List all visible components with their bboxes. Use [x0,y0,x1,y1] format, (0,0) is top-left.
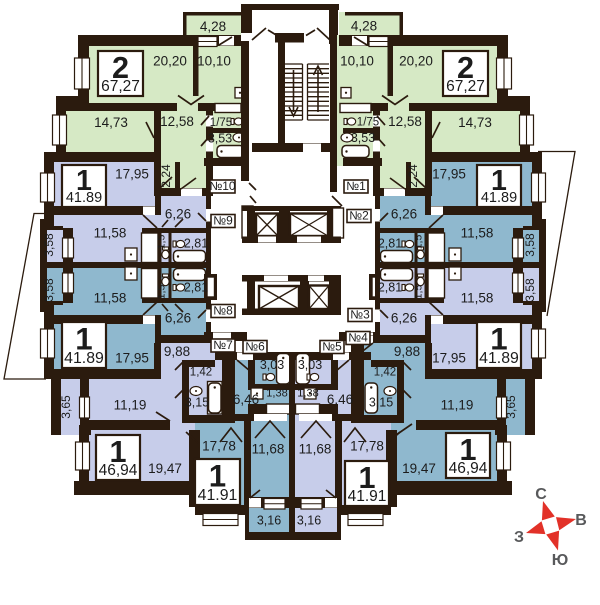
svg-text:№2: №2 [349,209,369,223]
svg-text:10,10: 10,10 [340,54,374,69]
svg-text:1/75: 1/75 [357,117,379,129]
svg-text:19,47: 19,47 [148,461,182,476]
svg-text:12,58: 12,58 [160,114,194,129]
svg-text:№4: №4 [348,331,368,345]
svg-text:41.89: 41.89 [479,350,519,367]
svg-text:6,26: 6,26 [391,311,417,326]
svg-text:2,81: 2,81 [184,237,208,251]
svg-text:41.91: 41.91 [198,487,238,504]
svg-text:1,38: 1,38 [266,388,287,400]
svg-text:14,73: 14,73 [94,115,128,130]
svg-text:3,15: 3,15 [369,396,393,410]
svg-text:№8: №8 [213,304,233,318]
svg-text:6,46: 6,46 [327,392,353,407]
svg-text:№3: №3 [350,308,370,322]
svg-text:67,27: 67,27 [101,78,140,95]
svg-text:11,58: 11,58 [461,291,494,306]
svg-text:46,94: 46,94 [449,460,488,477]
svg-text:3,53: 3,53 [351,131,375,145]
svg-text:14,73: 14,73 [458,115,492,130]
svg-text:2,81: 2,81 [378,237,402,251]
svg-text:17,95: 17,95 [432,351,466,366]
svg-text:1,5: 1,5 [413,285,425,300]
svg-text:2,24: 2,24 [406,164,420,188]
svg-text:4,28: 4,28 [351,19,377,34]
svg-text:11,68: 11,68 [252,442,285,457]
svg-text:11,19: 11,19 [114,398,147,413]
svg-text:1,42: 1,42 [374,367,396,379]
svg-text:6,26: 6,26 [165,311,191,326]
svg-text:2,24: 2,24 [159,164,173,188]
svg-text:12,58: 12,58 [388,114,422,129]
svg-text:Ю: Ю [552,552,569,569]
svg-text:11,58: 11,58 [94,226,127,241]
svg-text:20,20: 20,20 [399,54,433,69]
svg-text:№9: №9 [213,214,233,228]
svg-text:4,28: 4,28 [200,19,226,34]
svg-text:1,5: 1,5 [156,235,168,250]
svg-text:41.91: 41.91 [348,488,387,505]
svg-text:41.89: 41.89 [481,190,517,206]
svg-text:3,15: 3,15 [185,396,209,410]
svg-text:3,58: 3,58 [42,278,56,302]
svg-text:№10: №10 [209,179,235,193]
svg-text:№7: №7 [213,338,233,352]
svg-text:67,27: 67,27 [446,78,485,95]
svg-text:17,95: 17,95 [115,351,149,366]
svg-text:3,58: 3,58 [523,278,537,302]
svg-text:1,42: 1,42 [190,367,212,379]
svg-text:17,78: 17,78 [350,439,384,454]
svg-text:11,58: 11,58 [461,226,494,241]
svg-text:1,38: 1,38 [297,388,318,400]
svg-text:17,78: 17,78 [202,439,236,454]
svg-text:9,88: 9,88 [164,344,190,359]
svg-text:3,65: 3,65 [504,395,518,419]
svg-text:19,47: 19,47 [402,461,436,476]
svg-text:3,03: 3,03 [298,358,322,372]
svg-text:10,10: 10,10 [197,54,231,69]
svg-text:3,16: 3,16 [297,514,321,528]
svg-text:17,95: 17,95 [432,167,466,182]
svg-text:№6: №6 [245,340,265,354]
svg-text:3,16: 3,16 [257,514,281,528]
svg-text:20,20: 20,20 [153,54,187,69]
svg-text:3,58: 3,58 [42,233,56,257]
svg-text:№1: №1 [346,179,366,193]
svg-text:11,68: 11,68 [299,442,332,457]
svg-text:6,26: 6,26 [165,207,191,222]
svg-text:1/75: 1/75 [210,117,232,129]
svg-text:З: З [514,529,524,546]
svg-text:17,95: 17,95 [115,167,149,182]
svg-text:1,5: 1,5 [413,235,425,250]
svg-text:3,65: 3,65 [59,395,73,419]
svg-text:41.89: 41.89 [66,190,102,206]
svg-text:2,81: 2,81 [378,281,402,295]
svg-text:46,94: 46,94 [99,462,138,479]
svg-text:11,19: 11,19 [441,398,474,413]
svg-text:3,03: 3,03 [260,358,284,372]
svg-text:41.89: 41.89 [64,350,104,367]
svg-text:В: В [575,512,587,529]
svg-text:3,58: 3,58 [523,233,537,257]
svg-text:2,81: 2,81 [184,281,208,295]
svg-text:№5: №5 [322,340,342,354]
svg-text:С: С [535,486,547,503]
svg-text:6,46: 6,46 [233,392,259,407]
svg-text:11,58: 11,58 [94,291,127,306]
svg-text:1,5: 1,5 [156,285,168,300]
svg-text:3,53: 3,53 [208,132,232,146]
svg-text:9,88: 9,88 [394,344,420,359]
svg-text:6,26: 6,26 [391,207,417,222]
